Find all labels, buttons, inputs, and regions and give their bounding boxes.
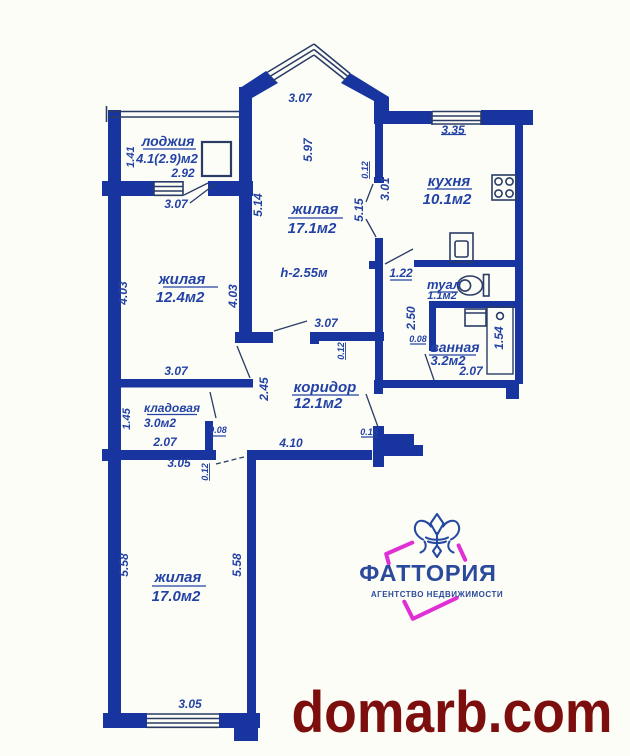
svg-text:3.05: 3.05	[178, 697, 202, 711]
svg-text:кухня: кухня	[428, 173, 471, 190]
svg-text:АГЕНТСТВО НЕДВИЖИМОСТИ: АГЕНТСТВО НЕДВИЖИМОСТИ	[371, 590, 503, 599]
svg-text:1.41: 1.41	[125, 146, 137, 167]
svg-text:3.07: 3.07	[164, 197, 189, 211]
svg-text:4.03: 4.03	[226, 284, 240, 309]
svg-text:h-2.55м: h-2.55м	[280, 265, 328, 280]
svg-text:5.58: 5.58	[117, 553, 131, 577]
svg-text:2.07: 2.07	[152, 435, 178, 449]
svg-text:2.50: 2.50	[404, 306, 418, 331]
svg-text:10.1м2: 10.1м2	[423, 191, 472, 208]
svg-text:2.07: 2.07	[458, 364, 484, 378]
svg-text:2.45: 2.45	[257, 377, 271, 402]
svg-text:2.92: 2.92	[170, 166, 195, 180]
svg-text:3.0м2: 3.0м2	[144, 416, 177, 430]
svg-text:3.05: 3.05	[167, 456, 191, 470]
svg-text:1.54: 1.54	[492, 326, 506, 350]
svg-text:3.07: 3.07	[314, 316, 339, 330]
svg-text:12.4м2: 12.4м2	[156, 289, 205, 306]
svg-text:3.07: 3.07	[288, 91, 313, 105]
svg-text:0.08: 0.08	[209, 425, 227, 435]
svg-text:жилая: жилая	[291, 201, 339, 218]
svg-text:domarb.com: domarb.com	[292, 680, 613, 745]
svg-text:кладовая: кладовая	[144, 401, 200, 415]
svg-text:0.12: 0.12	[200, 463, 210, 481]
svg-text:5.97: 5.97	[301, 137, 315, 162]
svg-text:жилая: жилая	[154, 569, 202, 586]
svg-text:0.12: 0.12	[336, 342, 346, 360]
svg-text:5.15: 5.15	[352, 198, 366, 222]
svg-text:5.58: 5.58	[230, 553, 244, 577]
svg-text:3.01: 3.01	[378, 177, 392, 201]
svg-text:17.0м2: 17.0м2	[152, 588, 201, 605]
svg-text:лоджия: лоджия	[141, 133, 195, 149]
svg-text:жилая: жилая	[158, 271, 206, 288]
svg-text:1.22: 1.22	[389, 266, 413, 280]
svg-text:4.03: 4.03	[116, 281, 130, 306]
svg-text:17.1м2: 17.1м2	[288, 220, 337, 237]
svg-text:0.08: 0.08	[409, 334, 427, 344]
svg-text:4.1(2.9)м2: 4.1(2.9)м2	[135, 151, 198, 166]
svg-text:0.12: 0.12	[360, 161, 370, 179]
svg-text:12.1м2: 12.1м2	[294, 395, 343, 412]
svg-text:4.10: 4.10	[278, 436, 303, 450]
svg-text:0.16: 0.16	[360, 427, 379, 437]
svg-text:ФАТТОРИЯ: ФАТТОРИЯ	[359, 560, 497, 586]
svg-text:коридор: коридор	[294, 379, 357, 396]
svg-text:5.14: 5.14	[251, 193, 265, 217]
svg-text:1.45: 1.45	[121, 407, 133, 429]
svg-text:3.07: 3.07	[164, 364, 189, 378]
